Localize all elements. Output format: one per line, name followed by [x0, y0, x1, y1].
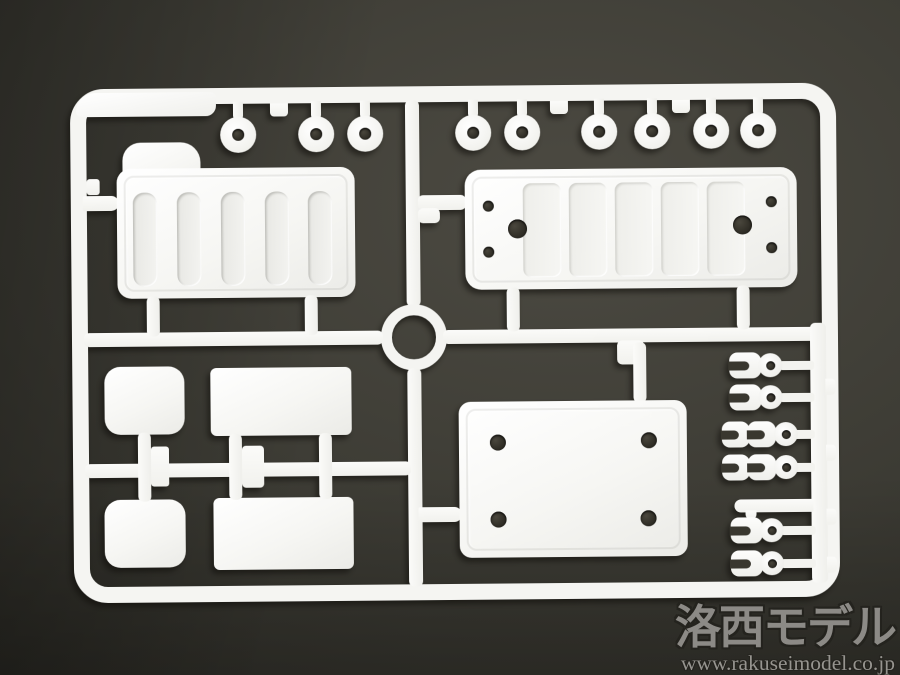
- clevis-fork-part: [729, 352, 814, 379]
- grommet-ring-hole: [467, 127, 479, 139]
- canopy-gate-runner-right: [305, 295, 318, 335]
- rect-plate-connector-right: [319, 433, 333, 499]
- canopy-gate-runner-left: [147, 297, 160, 337]
- fork-eyelet-hole: [767, 526, 776, 535]
- plate-hole-large: [508, 219, 527, 238]
- fork-notch: [730, 526, 751, 535]
- grommet-ring-hole: [646, 125, 658, 137]
- fork-shaft: [781, 559, 816, 568]
- plate-hole-large: [733, 215, 752, 234]
- runner-horizontal-left: [84, 331, 383, 348]
- canopy-groove: [308, 191, 333, 285]
- frame-tab: [270, 103, 288, 116]
- base-plate-hole: [641, 432, 657, 448]
- clevis-fork-part: [731, 550, 816, 577]
- plate-hole-small: [766, 242, 777, 253]
- small-tab-part-left: [151, 446, 169, 486]
- molding-tag-plate: [76, 92, 216, 117]
- rect-plate-connector-left: [229, 434, 243, 500]
- plate-recess-panel: [569, 183, 608, 277]
- fork-eyelet-hole: [766, 361, 775, 370]
- plastic-sprue: [0, 0, 900, 675]
- grommet-ring-hole: [705, 125, 717, 137]
- clevis-fork-part: [729, 384, 814, 411]
- photo-background: 洛西モデル www.rakuseimodel.co.jp: [0, 0, 900, 675]
- fork-eyelet-hole: [782, 463, 791, 472]
- small-tab-part-right: [242, 446, 264, 488]
- plate-recess-panel: [523, 183, 562, 277]
- canopy-groove: [177, 192, 202, 286]
- fork-notch: [721, 463, 739, 472]
- runner-side-tab: [825, 379, 835, 395]
- ribbed-plate-gate-runner-right: [737, 285, 750, 329]
- grommet-ring-hole: [593, 126, 605, 138]
- fork-notch: [730, 559, 751, 568]
- watermark-brand: 洛西モデル: [675, 604, 895, 650]
- rounded-pad-part-bottom: [104, 499, 186, 568]
- ribbed-plate-gate-runner-left: [507, 287, 520, 331]
- canopy-groove: [133, 193, 158, 287]
- canopy-frame-tab: [87, 179, 100, 195]
- fork-notch: [721, 430, 739, 439]
- fork-notch: [728, 393, 749, 402]
- rounded-pad-part-top: [104, 366, 185, 435]
- plate-hole-small: [483, 201, 494, 212]
- plate-recess-panel: [661, 182, 700, 276]
- fork-notch: [728, 361, 749, 370]
- rect-plate-part-top: [210, 367, 352, 436]
- grommet-ring-hole: [359, 128, 371, 140]
- base-plate-connector-stem: [633, 342, 647, 402]
- plate-hole-small: [483, 247, 494, 258]
- rect-plate-part-bottom: [213, 497, 354, 570]
- pad-connector-runner: [138, 433, 152, 502]
- fork-shaft: [781, 526, 816, 535]
- frame-tab: [550, 101, 568, 114]
- runner-side-tab: [827, 557, 837, 573]
- fork-shaft: [779, 361, 814, 370]
- base-plate-hole: [490, 512, 506, 528]
- watermark-url: www.rakuseimodel.co.jp: [675, 653, 895, 675]
- runner-vertical-bottom: [407, 368, 423, 586]
- grommet-ring-hole: [310, 128, 322, 140]
- plate-hole-small: [766, 196, 777, 207]
- fork-notch: [747, 463, 765, 472]
- ribbed-plate-connector-step: [418, 208, 440, 223]
- fork-eyelet-hole: [781, 430, 790, 439]
- fork-eyelet-hole: [767, 559, 776, 568]
- fork-eyelet-hole: [766, 393, 775, 402]
- fork-notch: [747, 430, 765, 439]
- base-plate-hole: [490, 435, 506, 451]
- grommet-ring-hole: [752, 124, 764, 136]
- clevis-fork-part: [731, 517, 816, 544]
- center-ring-junction: [381, 304, 448, 371]
- plate-recess-panel: [615, 182, 654, 276]
- canopy-gate-stub: [83, 196, 119, 211]
- canopy-groove: [265, 191, 290, 285]
- fork-shaft: [779, 393, 814, 402]
- runner-side-tab: [826, 445, 836, 461]
- clevis-fork-part: [722, 421, 815, 448]
- base-plate-part: [459, 400, 688, 558]
- grommet-ring-hole: [232, 129, 244, 141]
- grommet-ring-hole: [516, 126, 528, 138]
- base-plate-hole: [640, 510, 656, 526]
- watermark: 洛西モデル www.rakuseimodel.co.jp: [675, 604, 895, 675]
- base-plate-gate-stub: [418, 507, 461, 522]
- frame-tab: [672, 100, 690, 113]
- clevis-fork-part: [722, 454, 815, 481]
- canopy-groove: [221, 192, 246, 286]
- runner-side-tab: [826, 509, 836, 525]
